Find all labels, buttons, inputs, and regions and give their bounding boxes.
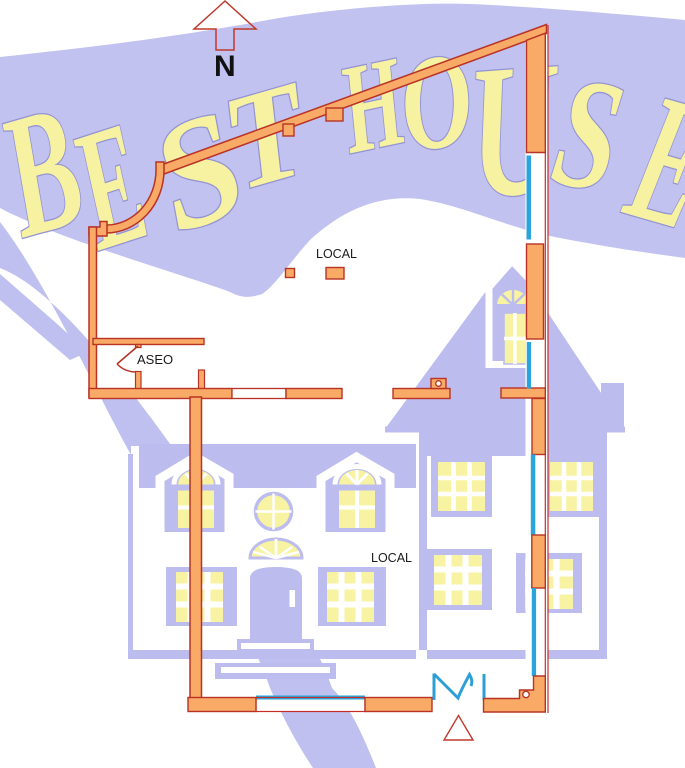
svg-text:LOCAL: LOCAL: [371, 551, 412, 565]
svg-text:N: N: [214, 50, 236, 83]
svg-text:LOCAL: LOCAL: [316, 247, 357, 261]
svg-text:ASEO: ASEO: [137, 352, 173, 367]
